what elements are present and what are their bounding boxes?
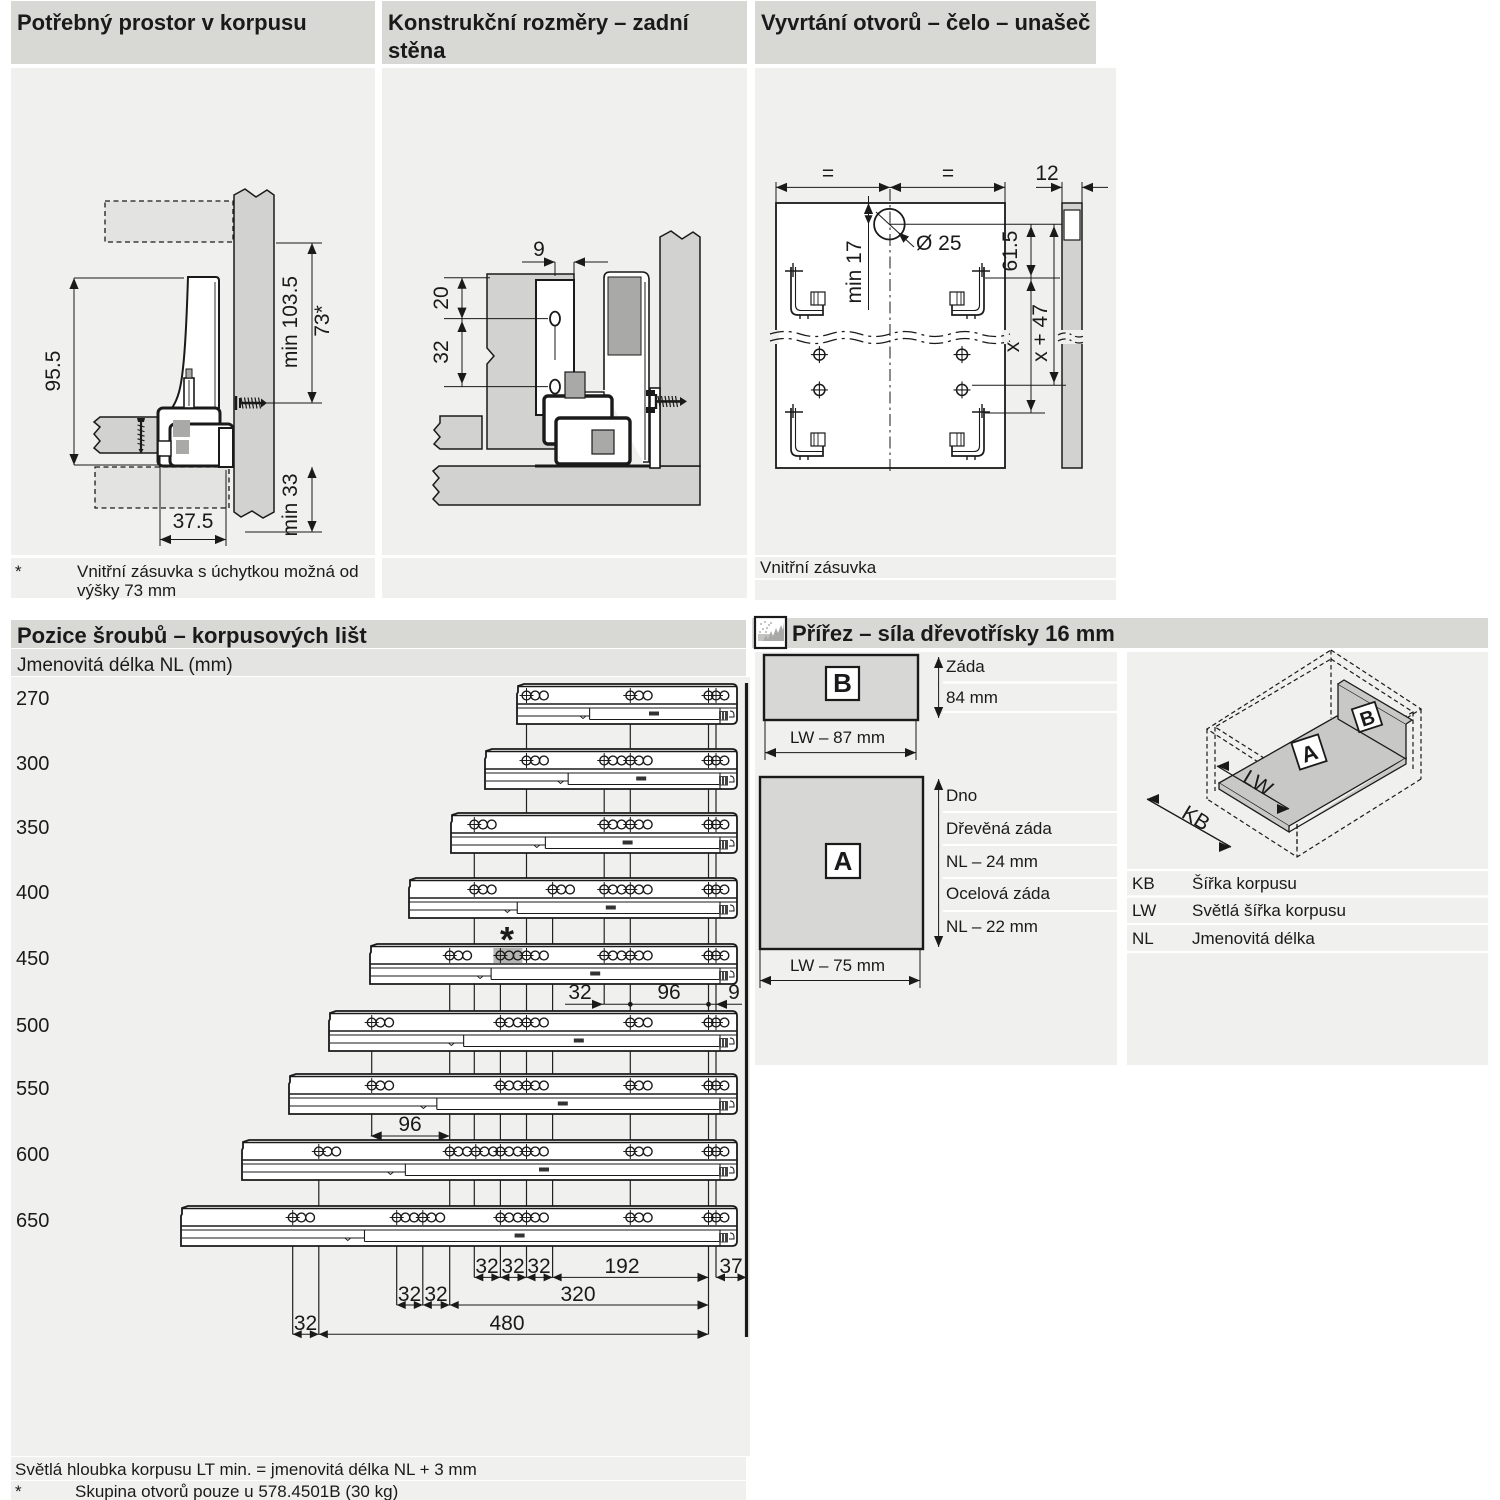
svg-text:9: 9	[533, 238, 545, 261]
svg-text:270: 270	[16, 688, 49, 710]
svg-text:LW – 75 mm: LW – 75 mm	[790, 956, 885, 975]
svg-text:B: B	[833, 668, 852, 698]
svg-text:32: 32	[501, 1255, 524, 1278]
svg-text:Vnitřní zásuvka: Vnitřní zásuvka	[760, 558, 877, 577]
svg-text:32: 32	[294, 1312, 317, 1335]
svg-text:600: 600	[16, 1144, 49, 1166]
svg-text:NL – 22 mm: NL – 22 mm	[946, 917, 1038, 936]
svg-text:Ocelová záda: Ocelová záda	[946, 884, 1050, 903]
svg-text:=: =	[942, 162, 954, 185]
svg-text:*: *	[15, 1482, 22, 1500]
svg-text:Vyvrtání otvorů – čelo – unaše: Vyvrtání otvorů – čelo – unašeč	[761, 10, 1090, 35]
svg-text:73*: 73*	[311, 305, 334, 337]
svg-text:32: 32	[527, 1255, 550, 1278]
svg-text:Pozice šroubů – korpusových li: Pozice šroubů – korpusových lišt	[17, 623, 367, 648]
svg-text:Světlá hloubka korpusu LT min.: Světlá hloubka korpusu LT min. = jmenovi…	[15, 1460, 477, 1479]
svg-text:A: A	[834, 846, 853, 876]
svg-text:480: 480	[489, 1312, 524, 1335]
svg-text:320: 320	[560, 1283, 595, 1306]
svg-text:stěna: stěna	[388, 38, 446, 63]
svg-text:61.5: 61.5	[999, 231, 1022, 272]
svg-text:12: 12	[1035, 162, 1058, 185]
svg-text:32: 32	[424, 1283, 447, 1306]
svg-text:9: 9	[728, 981, 740, 1004]
svg-text:400: 400	[16, 882, 49, 904]
svg-text:450: 450	[16, 948, 49, 970]
svg-text:min 103.5: min 103.5	[279, 276, 302, 368]
svg-text:Záda: Záda	[946, 657, 985, 676]
svg-text:32: 32	[568, 981, 591, 1004]
svg-text:*: *	[500, 919, 514, 960]
svg-text:37.5: 37.5	[173, 510, 214, 533]
svg-text:NL: NL	[1132, 929, 1154, 948]
svg-text:min 17: min 17	[843, 240, 866, 303]
svg-text:LW – 87 mm: LW – 87 mm	[790, 728, 885, 747]
svg-text:Skupina otvorů pouze u 578.450: Skupina otvorů pouze u 578.4501B (30 kg)	[75, 1482, 398, 1500]
svg-text:Jmenovitá délka: Jmenovitá délka	[1192, 929, 1315, 948]
svg-text:500: 500	[16, 1015, 49, 1037]
svg-text:NL – 24 mm: NL – 24 mm	[946, 852, 1038, 871]
svg-text:výšky 73 mm: výšky 73 mm	[77, 581, 176, 600]
svg-text:Vnitřní zásuvka s úchytkou mož: Vnitřní zásuvka s úchytkou možná od	[77, 562, 359, 581]
svg-text:x + 47: x + 47	[1029, 304, 1052, 362]
svg-text:550: 550	[16, 1078, 49, 1100]
svg-text:300: 300	[16, 753, 49, 775]
svg-text:32: 32	[398, 1283, 421, 1306]
svg-text:Šířka korpusu: Šířka korpusu	[1192, 874, 1297, 893]
svg-text:=: =	[822, 162, 834, 185]
svg-text:95.5: 95.5	[42, 351, 65, 392]
svg-text:Dno: Dno	[946, 786, 977, 805]
svg-text:96: 96	[398, 1113, 421, 1136]
svg-text:32: 32	[430, 340, 453, 363]
svg-text:96: 96	[657, 981, 680, 1004]
svg-text:Jmenovitá délka NL (mm): Jmenovitá délka NL (mm)	[17, 655, 233, 676]
svg-text:Konstrukční rozměry – zadní: Konstrukční rozměry – zadní	[388, 10, 690, 35]
svg-text:Ø 25: Ø 25	[916, 232, 962, 255]
svg-text:*: *	[15, 562, 22, 581]
svg-text:x: x	[1001, 341, 1024, 352]
svg-text:KB: KB	[1132, 874, 1155, 893]
svg-text:37: 37	[719, 1255, 742, 1278]
svg-text:84 mm: 84 mm	[946, 688, 998, 707]
svg-text:32: 32	[475, 1255, 498, 1278]
svg-text:Dřevěná záda: Dřevěná záda	[946, 819, 1052, 838]
svg-text:Světlá šířka korpusu: Světlá šířka korpusu	[1192, 901, 1346, 920]
svg-text:20: 20	[430, 286, 453, 309]
svg-text:Potřebný prostor v korpusu: Potřebný prostor v korpusu	[17, 10, 307, 35]
svg-text:LW: LW	[1132, 901, 1156, 920]
svg-text:Přířez – síla dřevotřísky 16 m: Přířez – síla dřevotřísky 16 mm	[792, 621, 1115, 646]
svg-text:min 33: min 33	[279, 473, 302, 536]
svg-text:650: 650	[16, 1210, 49, 1232]
svg-text:192: 192	[604, 1255, 639, 1278]
svg-text:350: 350	[16, 817, 49, 839]
